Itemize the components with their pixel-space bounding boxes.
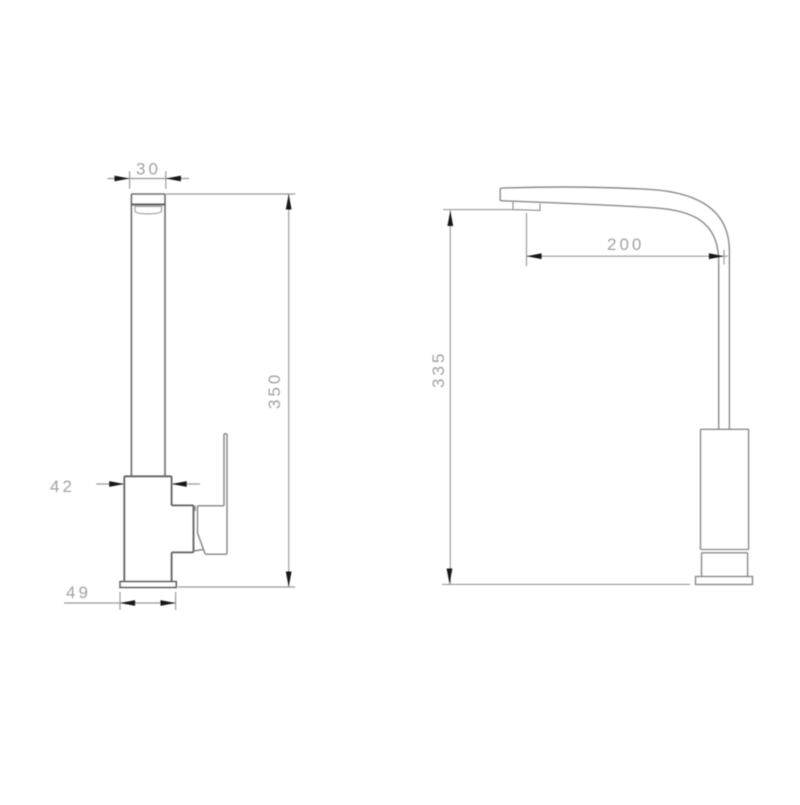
svg-text:335: 335 [429,351,448,388]
svg-text:42: 42 [50,477,75,496]
svg-text:30: 30 [136,160,161,179]
svg-text:49: 49 [66,583,91,602]
svg-text:350: 350 [265,372,284,409]
svg-text:200: 200 [607,235,644,254]
